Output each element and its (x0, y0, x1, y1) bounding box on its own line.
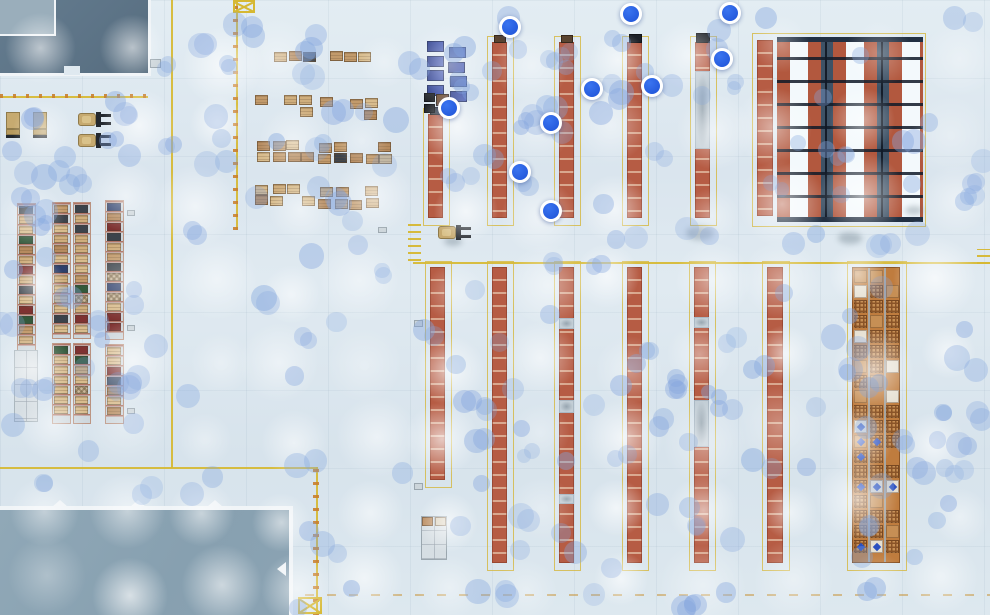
location-marker-5[interactable] (641, 75, 663, 97)
markers-layer (0, 0, 990, 615)
location-marker-10[interactable] (540, 200, 562, 222)
location-marker-9[interactable] (509, 161, 531, 183)
location-marker-2[interactable] (620, 3, 642, 25)
warehouse-map (0, 0, 990, 615)
location-marker-1[interactable] (499, 16, 521, 38)
location-marker-6[interactable] (581, 78, 603, 100)
location-marker-3[interactable] (719, 2, 741, 24)
location-marker-7[interactable] (438, 97, 460, 119)
location-marker-4[interactable] (711, 48, 733, 70)
location-marker-8[interactable] (540, 112, 562, 134)
